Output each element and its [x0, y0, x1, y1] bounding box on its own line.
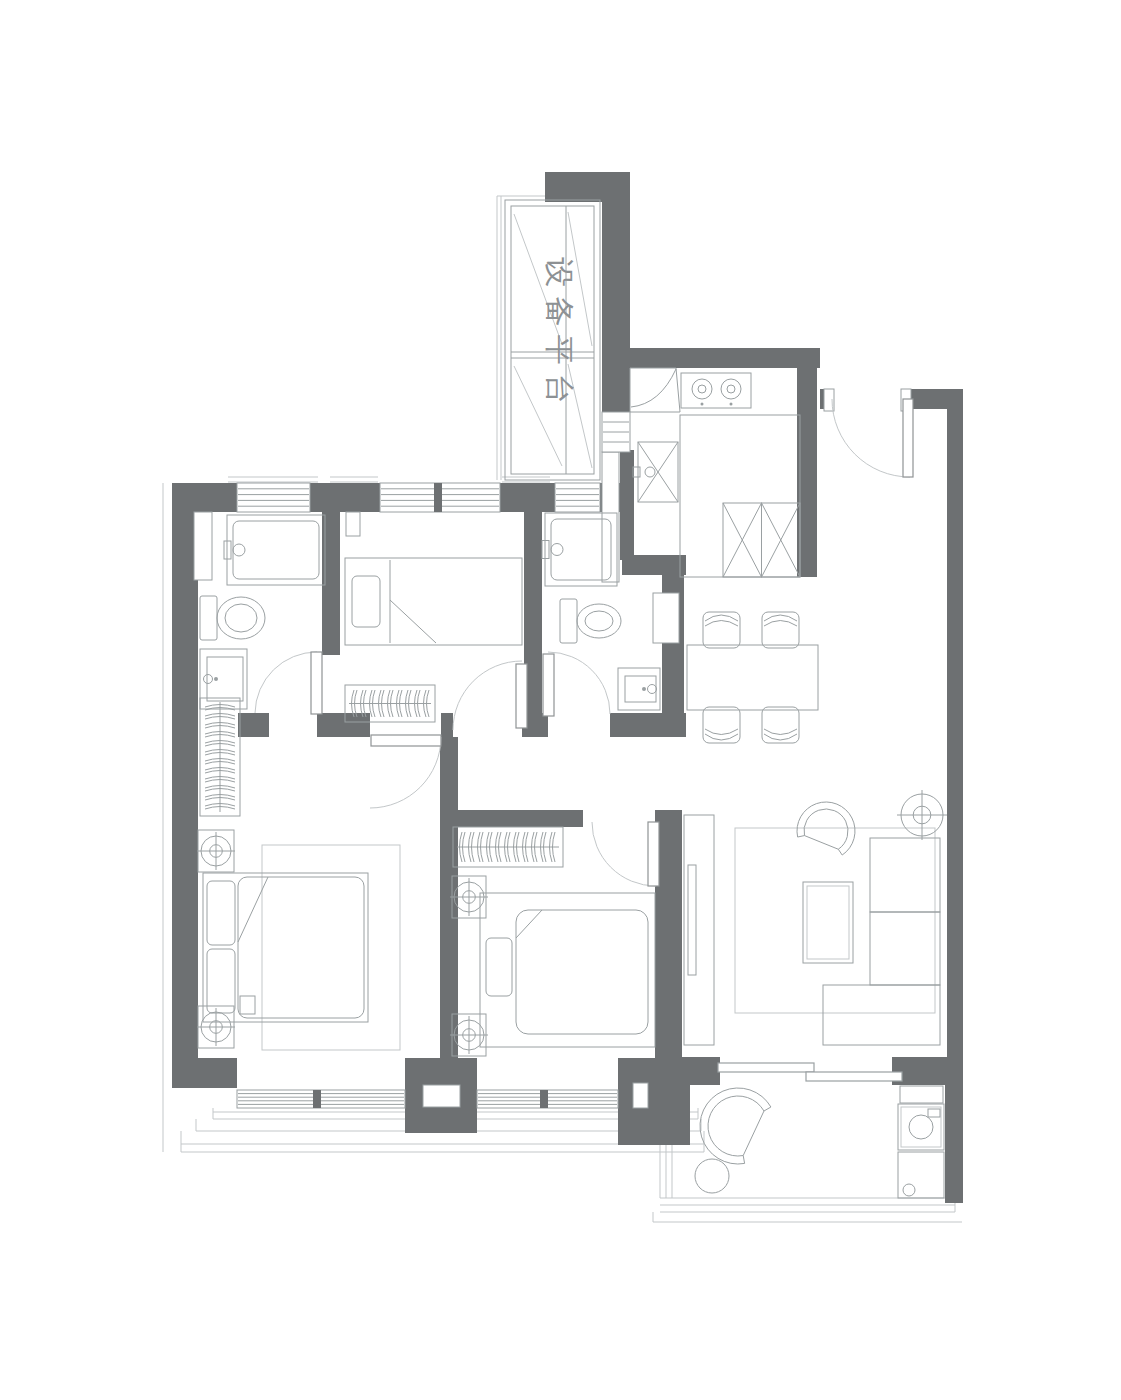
living-armchair: [797, 802, 855, 855]
bedroom2-door: [592, 822, 659, 886]
wall-segment: [443, 810, 583, 827]
bedroom3-bed: [345, 558, 522, 645]
floor-plan: 设备平台: [0, 0, 1121, 1400]
window: [555, 483, 600, 512]
kitchen-counter: [680, 415, 800, 577]
wall-niche: [346, 512, 360, 536]
window: [237, 483, 310, 512]
wall-segment: [906, 389, 963, 409]
living-sofa: [823, 838, 940, 1045]
bathroom1-door: [255, 652, 322, 714]
bedroom2-bed: [480, 893, 655, 1047]
balcony-side-table: [695, 1159, 729, 1193]
coffee-table: [803, 882, 853, 963]
wall-segment: [602, 348, 820, 368]
window: [237, 1090, 405, 1108]
wall-niches: [194, 452, 679, 1108]
bathroom2-vanity: [618, 668, 660, 710]
master-bed: [203, 873, 368, 1022]
windows: [237, 412, 630, 1108]
wall-segment: [545, 172, 630, 202]
wall-segment: [310, 483, 380, 512]
floor-lamp: [897, 790, 947, 840]
wall-segment: [618, 1058, 690, 1145]
wall-niche: [423, 1085, 460, 1107]
hall-radiator: [200, 698, 240, 816]
floor-plan-canvas: 设备平台: [0, 0, 1121, 1400]
wall-segment: [947, 409, 963, 1059]
balcony-washer: [898, 1104, 944, 1150]
bathroom1-toilet: [200, 596, 265, 640]
bathroom2-door: [543, 652, 610, 716]
tv-console: [684, 815, 714, 1045]
bathroom1-shower: [224, 515, 325, 585]
kitchen-fridge: [723, 503, 800, 577]
wall-niche: [653, 593, 679, 643]
window: [477, 1090, 618, 1108]
balcony-drain: [903, 1184, 915, 1196]
wall-segment: [620, 450, 634, 560]
equipment-platform-label: 设备平台: [543, 257, 576, 413]
bedroom3-door: [453, 661, 527, 730]
wall-segment: [945, 1085, 963, 1203]
wall-segment: [610, 713, 686, 737]
bedroom2-radiator: [453, 827, 563, 867]
kitchen-sink: [633, 442, 678, 502]
kitchen-stove: [681, 373, 751, 408]
wall-segment: [172, 483, 237, 512]
dining-set: [687, 612, 818, 743]
wall-segment: [172, 1058, 237, 1088]
wall-segment: [441, 713, 453, 737]
master-rug: [262, 845, 400, 1050]
bathroom2-toilet: [560, 599, 621, 643]
master-nightstand-top: [197, 830, 235, 872]
balcony-lounge-chair: [700, 1088, 771, 1164]
wall-segment: [500, 483, 555, 512]
balcony-cabinet-top: [900, 1086, 943, 1103]
entry-door: [824, 389, 913, 477]
wall-segment: [238, 713, 269, 737]
master-bedroom-door: [370, 735, 441, 808]
kitchen-corner-cabinet: [630, 368, 680, 412]
wall-segment: [892, 1057, 963, 1085]
wall-niche: [194, 512, 212, 580]
window: [602, 412, 630, 452]
balcony-sliding-door: [718, 1063, 902, 1081]
wall-niche: [633, 1083, 648, 1108]
wall-segment: [317, 713, 370, 737]
balcony-cabinet-bottom: [898, 1152, 944, 1198]
wall-segment: [602, 202, 630, 412]
wall-segment: [662, 560, 684, 731]
window: [380, 483, 500, 512]
